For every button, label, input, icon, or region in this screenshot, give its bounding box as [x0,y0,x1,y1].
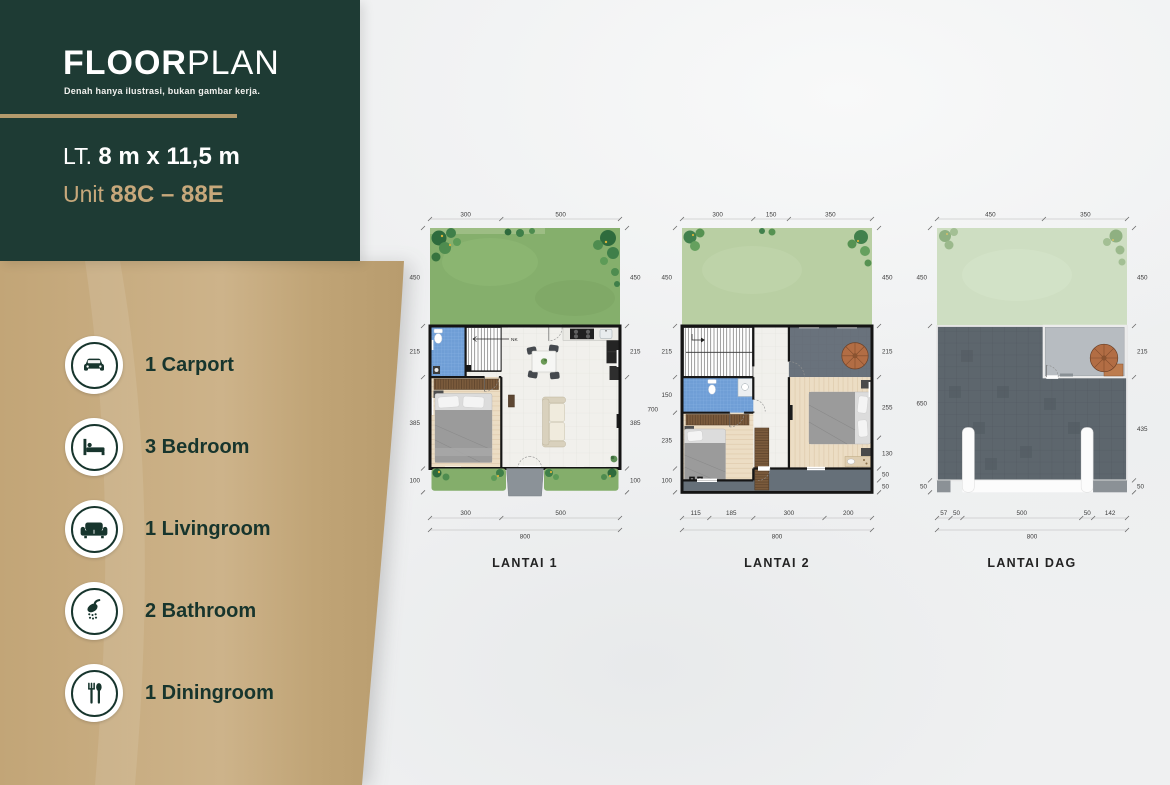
dim-label: 50 [953,510,961,517]
roof-deck [937,326,1127,492]
dim-label: 385 [630,420,641,427]
legend-item-livingroom: 1 Livingroom [65,500,271,558]
bottom-ledge-left [937,480,951,492]
dim-label: 500 [555,510,566,517]
room-door-gap [1046,375,1058,379]
dim-total-label: 800 [520,534,531,541]
dim-label: 150 [766,212,777,219]
driveway [507,469,544,497]
floorplan-lantai-2: TR [642,200,912,590]
tv-unit [790,405,793,420]
dim-label: 115 [691,510,702,517]
sofa-icon [65,500,123,558]
dim-label: 142 [1105,510,1116,517]
legend-item-bathroom: 2 Bathroom [65,582,256,640]
dim-label: 300 [784,510,795,517]
dim-label: 435 [1137,426,1148,433]
console-table [508,395,514,407]
dim-outer-label: 700 [647,406,658,413]
door-mat [1060,374,1073,377]
dim-label: 450 [882,274,893,281]
floor-level-2: TR [682,325,872,493]
legend: 1 Carport 3 Bedroom [0,0,380,785]
dim-label: 50 [920,484,928,491]
car-icon [65,336,123,394]
legend-label: 1 Livingroom [145,518,271,541]
dim-label: 100 [630,478,641,485]
dim-label: 215 [409,349,420,356]
dim-label: 300 [712,212,723,219]
dim-label: 150 [661,392,672,399]
floorplan-lantai-dag: 450 350 450 650 50 450 215 435 50 57 50 … [897,200,1167,590]
cutlery-icon [65,664,123,722]
dim-label: 185 [726,510,737,517]
legend-item-diningroom: 1 Diningroom [65,664,274,722]
dim-label: 500 [555,212,566,219]
dim-label: 100 [661,478,672,485]
dim-label: 100 [409,478,420,485]
terrace [789,328,871,378]
dim-label: 57 [940,510,948,517]
dim-label: 450 [985,212,996,219]
floor-level-1: NK [430,324,621,471]
dim-label: 450 [916,274,927,281]
dim-label: 450 [630,274,641,281]
dim-label: 450 [409,274,420,281]
dim-label: 235 [661,438,672,445]
garden [682,228,872,326]
shower-icon [65,582,123,640]
dim-label: 350 [825,212,836,219]
dim-label: 215 [1137,349,1148,356]
front-garden [432,469,619,497]
dim-label: 450 [661,274,672,281]
indoor-plant [611,456,618,463]
floorplan-lantai-1: NK [390,200,660,590]
stair-room [1044,326,1126,379]
dim-label: 385 [409,420,420,427]
bathroom [684,377,754,413]
dim-label: 255 [882,405,893,412]
legend-item-carport: 1 Carport [65,336,234,394]
dim-label: 50 [882,484,890,491]
dim-label: 200 [843,510,854,517]
stair-direction-label: NK [511,337,518,343]
dim-total-label: 800 [772,534,783,541]
legend-label: 2 Bathroom [145,600,256,623]
dim-label: 130 [882,450,893,457]
dim-label: 215 [630,349,641,356]
dim-label: 450 [1137,274,1148,281]
bedroom [432,377,502,468]
garden [430,228,620,326]
dim-label: 215 [882,349,893,356]
bottom-ledge-right [1093,480,1127,492]
poster: FLOORPLAN Denah hanya ilustrasi, bukan g… [0,0,1170,785]
bathroom [432,328,466,378]
dim-total-label: 800 [1027,534,1038,541]
plan-title: LANTAI DAG [987,556,1076,570]
dim-label: 215 [661,349,672,356]
dim-label: 50 [1084,510,1092,517]
master-bedroom [789,377,871,468]
plan-title: LANTAI 2 [744,556,810,570]
plan-title: LANTAI 1 [492,556,558,570]
dim-label: 300 [460,510,471,517]
dim-label: 350 [1080,212,1091,219]
dim-label: 650 [916,400,927,407]
bed-icon [65,418,123,476]
legend-item-bedroom: 3 Bedroom [65,418,249,476]
bedroom-2 [684,413,754,481]
legend-label: 1 Diningroom [145,682,274,705]
garden [937,228,1127,326]
dim-label: 500 [1017,510,1028,517]
legend-label: 3 Bedroom [145,436,249,459]
dim-label: 300 [460,212,471,219]
legend-label: 1 Carport [145,354,234,377]
wardrobe [755,428,769,490]
dim-label: 50 [882,472,890,479]
spiral-stair [842,343,868,369]
dim-label: 50 [1137,484,1145,491]
